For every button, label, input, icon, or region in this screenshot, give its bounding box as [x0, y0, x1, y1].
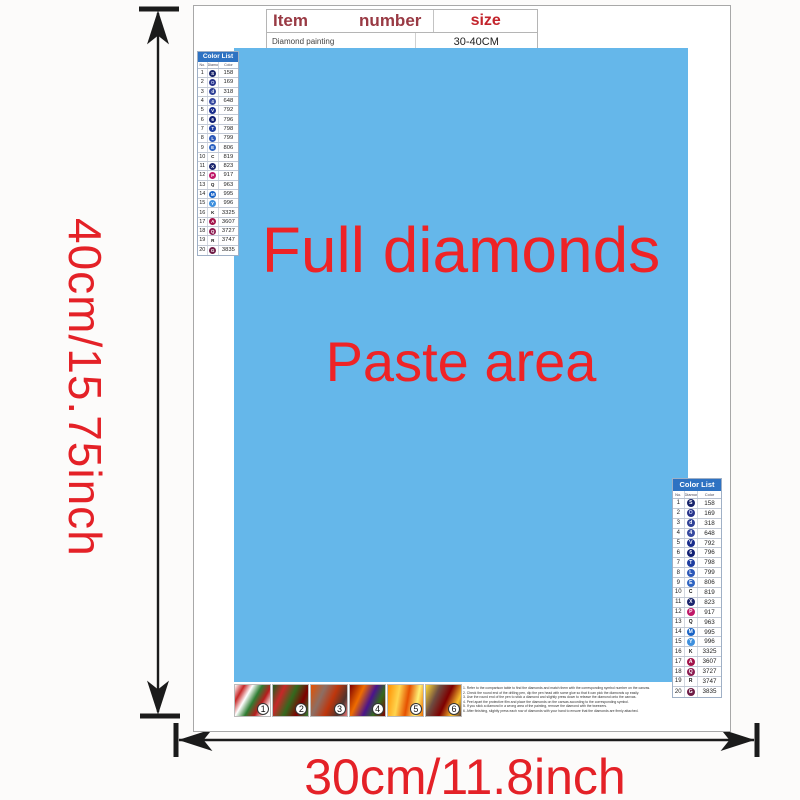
dmc-code: 995	[219, 191, 238, 197]
number-header-label: number	[359, 11, 421, 31]
diamond-symbol-icon: A	[209, 218, 216, 225]
color-list-row: 18 Q 3727	[198, 227, 238, 236]
color-list-row: 10 C 819	[198, 153, 238, 162]
color-list-row: 10 C 819	[673, 588, 721, 598]
color-list-left: Color List No. Diamond Color 1 S 158 2	[197, 51, 239, 256]
diamond-symbol-icon: V	[687, 539, 695, 547]
col-color: Color	[698, 491, 721, 498]
dmc-code: 3835	[219, 247, 238, 253]
dmc-code: 963	[698, 619, 721, 626]
step-thumbnail-image: 2	[272, 684, 309, 717]
step-number-badge: 3	[334, 703, 346, 715]
col-diamond: Diamond	[685, 491, 698, 498]
dmc-code: 917	[698, 609, 721, 616]
diamond-symbol-icon: K	[687, 648, 695, 656]
color-list-row: 13 Q 963	[198, 181, 238, 190]
color-list-title: Color List	[673, 479, 721, 491]
diamond-symbol-icon: T	[209, 125, 216, 132]
dmc-code: 799	[698, 569, 721, 576]
dmc-code: 806	[698, 579, 721, 586]
col-no: No.	[198, 62, 208, 68]
instruction-line: 1. Refer to the comparison table to find…	[463, 686, 669, 691]
col-color: Color	[219, 62, 238, 68]
color-list-row: 5 V 792	[198, 106, 238, 115]
dmc-code: 3835	[698, 688, 721, 695]
diamond-symbol-icon: A	[687, 658, 695, 666]
step-thumbnail-image: 5	[387, 684, 424, 717]
diamond-symbol-icon: X	[687, 598, 695, 606]
color-list-row: 13 Q 963	[673, 618, 721, 628]
dmc-code: 917	[219, 172, 238, 178]
color-list-row: 14 M 995	[673, 628, 721, 638]
step-thumbnail-image: 3	[310, 684, 347, 717]
instruction-text: 1. Refer to the comparison table to find…	[463, 686, 669, 716]
item-table-header: Item number size	[267, 10, 537, 33]
vertical-dimension-arrow	[139, 9, 180, 716]
color-list-row: 6 6 796	[673, 548, 721, 558]
color-list-row: 19 R 3747	[673, 677, 721, 687]
dmc-code: 169	[219, 79, 238, 85]
width-dimension-label: 30cm/11.8inch	[170, 748, 760, 800]
diamond-symbol-icon: C	[209, 153, 216, 160]
dmc-code: 158	[219, 70, 238, 76]
dmc-code: 3727	[219, 228, 238, 234]
color-list-title: Color List	[198, 52, 238, 62]
dmc-code: 3747	[219, 237, 238, 243]
step-thumbnails: 1 2 3 4 5 6	[234, 684, 462, 717]
color-list-columns: No. Diamond Color	[198, 62, 238, 69]
diamond-symbol-icon: G	[687, 688, 695, 696]
diamond-symbol-icon: G	[209, 247, 216, 254]
diamond-symbol-icon: L	[687, 569, 695, 577]
product-image-canvas: 40cm/15.75inch Item number size Diamond …	[0, 0, 800, 800]
diamond-symbol-icon: M	[687, 628, 695, 636]
dmc-code: 648	[219, 98, 238, 104]
diamond-symbol-icon: R	[209, 237, 216, 244]
step-number-badge: 4	[372, 703, 384, 715]
color-list-row: 18 Q 3727	[673, 667, 721, 677]
dmc-code: 819	[219, 154, 238, 160]
dmc-code: 318	[698, 520, 721, 527]
color-list-row: 17 A 3607	[198, 218, 238, 227]
item-header-label: Item	[273, 11, 308, 31]
dmc-code: 169	[698, 510, 721, 517]
dmc-code: 318	[219, 89, 238, 95]
color-list-row: 17 A 3607	[673, 657, 721, 667]
dmc-code: 796	[219, 117, 238, 123]
color-list-row: 2 O 169	[198, 78, 238, 87]
step-number-badge: 2	[295, 703, 307, 715]
color-list-row: 16 K 3325	[673, 647, 721, 657]
size-header-label: size	[434, 12, 537, 30]
diamond-symbol-icon: S	[209, 70, 216, 77]
step-number-badge: 5	[410, 703, 422, 715]
diamond-symbol-icon: V	[209, 107, 216, 114]
dmc-code: 806	[219, 145, 238, 151]
diamond-symbol-icon: O	[687, 509, 695, 517]
color-list-row: 7 T 798	[673, 558, 721, 568]
item-size-cell: 30-40CM	[416, 36, 538, 48]
step-number-badge: 1	[257, 703, 269, 715]
paste-area-subtitle: Paste area	[234, 334, 688, 390]
color-list-row: 5 V 792	[673, 539, 721, 549]
step-number-badge: 6	[448, 703, 460, 715]
color-list-right: Color List No. Diamond Color 1 S 158 2	[672, 478, 722, 698]
col-diamond: Diamond	[208, 62, 219, 68]
dmc-code: 995	[698, 629, 721, 636]
dmc-code: 996	[219, 200, 238, 206]
color-list-row: 2 O 169	[673, 509, 721, 519]
dmc-code: 3325	[219, 210, 238, 216]
diamond-symbol-icon: 4	[209, 98, 216, 105]
color-list-row: 4 4 648	[198, 97, 238, 106]
col-no: No.	[673, 491, 685, 498]
dmc-code: 3727	[698, 668, 721, 675]
color-list-row: 12 P 917	[673, 608, 721, 618]
color-list-row: 11 X 823	[198, 162, 238, 171]
diamond-symbol-icon: 6	[209, 116, 216, 123]
item-table: Item number size Diamond painting 30-40C…	[266, 9, 538, 51]
dmc-code: 3325	[698, 648, 721, 655]
color-list-row: 3 d 318	[673, 519, 721, 529]
diamond-symbol-icon: L	[209, 135, 216, 142]
dmc-code: 823	[698, 599, 721, 606]
dmc-code: 648	[698, 530, 721, 537]
color-list-row: 15 Y 996	[198, 199, 238, 208]
color-list-columns: No. Diamond Color	[673, 491, 721, 499]
diamond-symbol-icon: O	[209, 79, 216, 86]
color-list-row: 16 K 3325	[198, 208, 238, 217]
diamond-symbol-icon: 6	[687, 549, 695, 557]
diamond-symbol-icon: S	[687, 499, 695, 507]
diamond-symbol-icon: Q	[209, 181, 216, 188]
dmc-code: 798	[698, 559, 721, 566]
color-list-row: 3 d 318	[198, 88, 238, 97]
diamond-symbol-icon: d	[687, 519, 695, 527]
color-list-row: 6 6 796	[198, 115, 238, 124]
diamond-symbol-icon: E	[687, 579, 695, 587]
diamond-symbol-icon: Q	[209, 228, 216, 235]
dmc-code: 796	[698, 549, 721, 556]
color-list-row: 15 Y 996	[673, 637, 721, 647]
color-list-row: 1 S 158	[673, 499, 721, 509]
color-list-row: 20 G 3835	[673, 687, 721, 697]
color-list-row: 19 R 3747	[198, 236, 238, 245]
dmc-code: 3607	[698, 658, 721, 665]
color-list-row: 8 L 799	[673, 568, 721, 578]
diamond-symbol-icon: Y	[687, 638, 695, 646]
height-dimension-label: 40cm/15.75inch	[58, 218, 112, 558]
step-thumbnail-image: 1	[234, 684, 271, 717]
dmc-code: 996	[698, 638, 721, 645]
paste-area: Full diamonds Paste area	[234, 48, 688, 682]
color-list-row: 1 S 158	[198, 69, 238, 78]
color-list-row: 14 M 995	[198, 190, 238, 199]
diamond-symbol-icon: M	[209, 191, 216, 198]
color-list-row: 9 E 806	[673, 578, 721, 588]
dmc-code: 823	[219, 163, 238, 169]
color-list-row: 4 4 648	[673, 529, 721, 539]
diamond-symbol-icon: 4	[687, 529, 695, 537]
step-thumbnail-image: 4	[349, 684, 386, 717]
dmc-code: 819	[698, 589, 721, 596]
color-list-row: 9 E 806	[198, 143, 238, 152]
diamond-symbol-icon: d	[209, 88, 216, 95]
dmc-code: 963	[219, 182, 238, 188]
diamond-symbol-icon: X	[209, 163, 216, 170]
paste-area-title: Full diamonds	[234, 218, 688, 282]
color-list-rows: 1 S 158 2 O 169 3 d 318	[673, 499, 721, 697]
color-list-row: 20 G 3835	[198, 246, 238, 255]
diamond-symbol-icon: R	[687, 677, 695, 685]
diamond-symbol-icon: T	[687, 559, 695, 567]
color-list-row: 8 L 799	[198, 134, 238, 143]
dmc-code: 792	[219, 107, 238, 113]
diamond-symbol-icon: Q	[687, 618, 695, 626]
dmc-code: 792	[698, 540, 721, 547]
dmc-code: 3747	[698, 678, 721, 685]
color-list-row: 12 P 917	[198, 171, 238, 180]
color-list-row: 11 X 823	[673, 598, 721, 608]
color-list-rows: 1 S 158 2 O 169 3 d 318	[198, 69, 238, 255]
diamond-symbol-icon: Y	[209, 200, 216, 207]
dmc-code: 158	[698, 500, 721, 507]
dmc-code: 799	[219, 135, 238, 141]
dmc-code: 3607	[219, 219, 238, 225]
diamond-symbol-icon: E	[209, 144, 216, 151]
step-thumbnail-image: 6	[425, 684, 462, 717]
diamond-symbol-icon: C	[687, 588, 695, 596]
diamond-symbol-icon: Q	[687, 668, 695, 676]
diamond-symbol-icon: P	[209, 172, 216, 179]
instruction-line: 6. After finishing, slightly press each …	[463, 709, 669, 714]
diamond-symbol-icon: K	[209, 209, 216, 216]
color-list-row: 7 T 798	[198, 125, 238, 134]
canvas-sheet: Item number size Diamond painting 30-40C…	[193, 5, 731, 732]
dmc-code: 798	[219, 126, 238, 132]
diamond-symbol-icon: P	[687, 608, 695, 616]
